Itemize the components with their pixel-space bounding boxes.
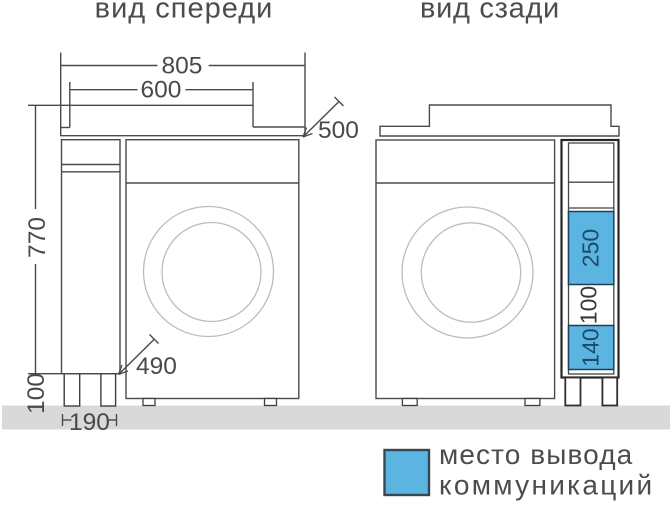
svg-text:100: 100 [576,286,602,324]
svg-text:вид спереди: вид спереди [95,0,274,25]
svg-text:140: 140 [578,328,604,366]
svg-text:805: 805 [162,53,203,80]
svg-text:100: 100 [23,373,50,414]
svg-text:190: 190 [69,409,110,436]
svg-text:250: 250 [578,229,604,267]
svg-text:600: 600 [141,77,182,104]
svg-text:вид сзади: вид сзади [420,0,560,25]
svg-text:770: 770 [24,217,51,258]
svg-text:место вывода: место вывода [439,439,633,470]
svg-text:коммуникаций: коммуникаций [439,470,654,501]
svg-text:500: 500 [318,117,359,144]
svg-text:490: 490 [136,353,177,380]
